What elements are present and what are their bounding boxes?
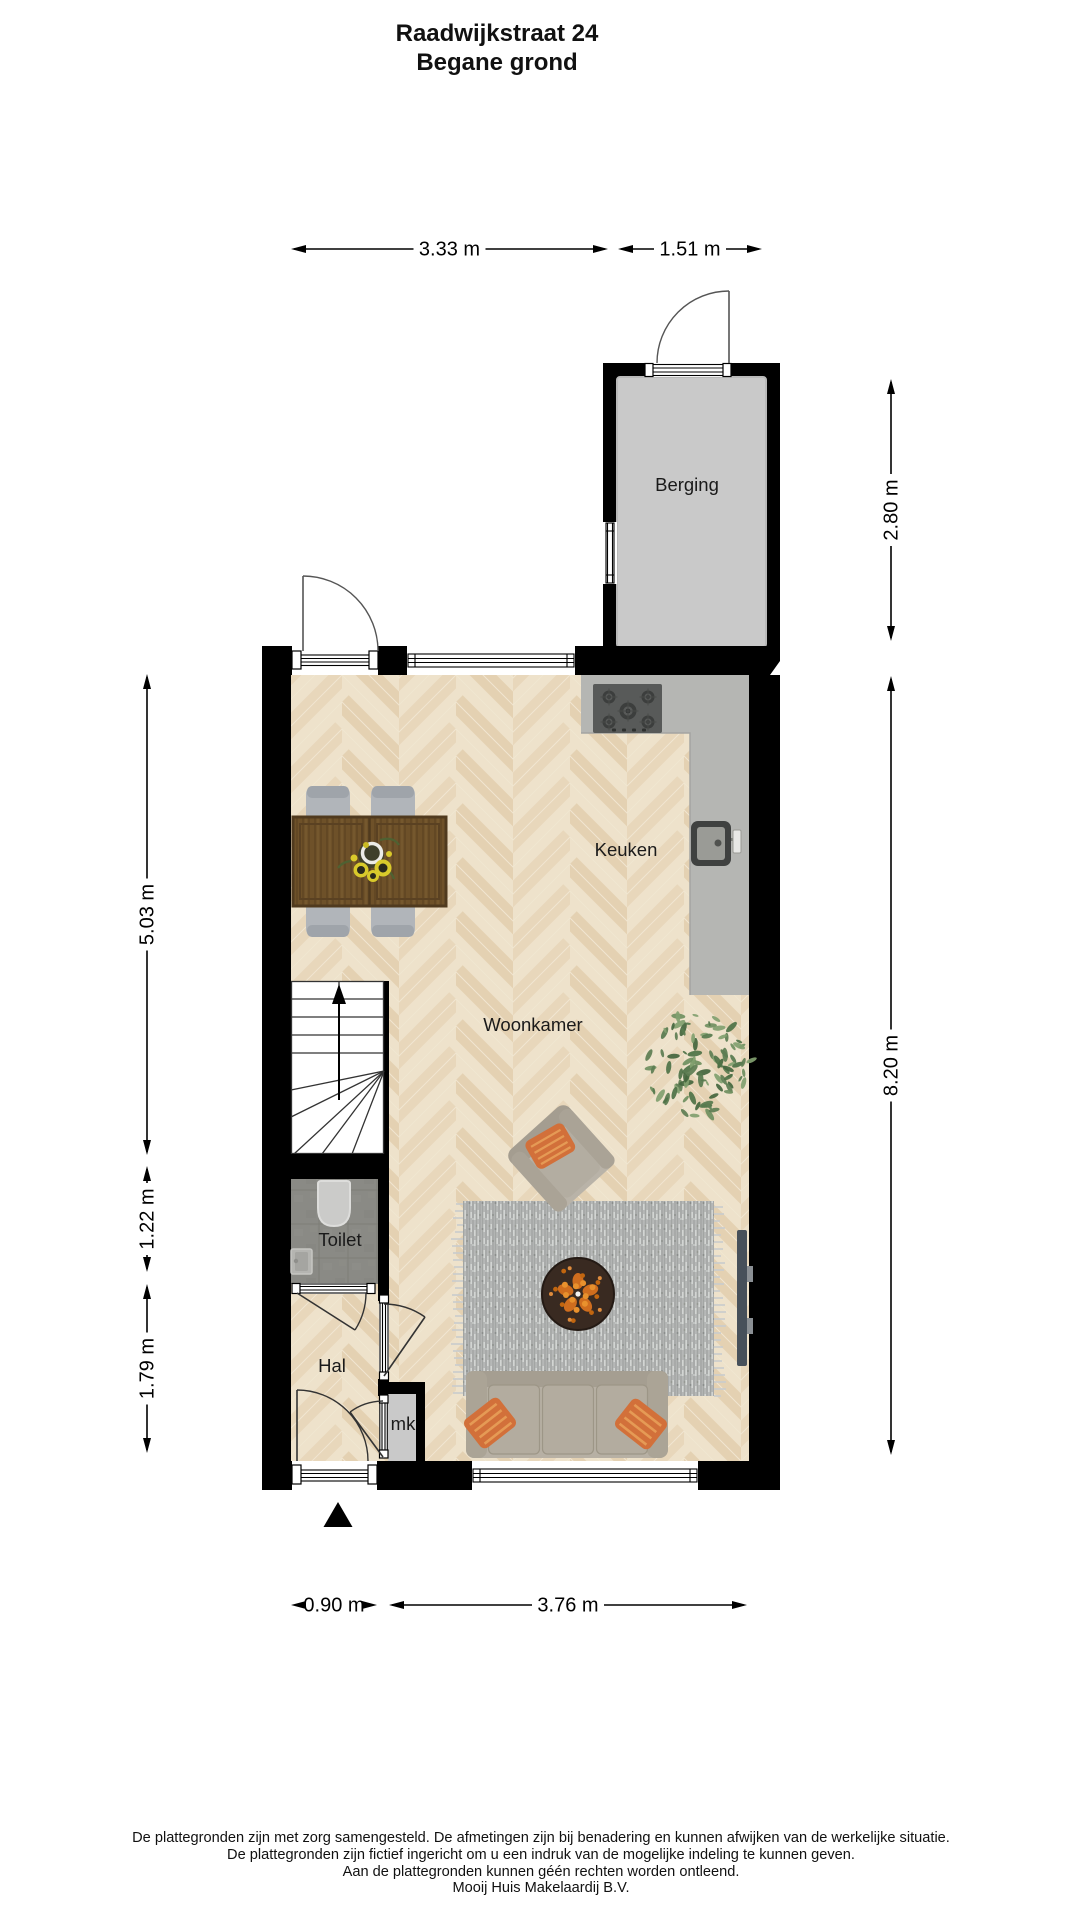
svg-text:Woonkamer: Woonkamer — [483, 1014, 582, 1035]
svg-text:Mooij Huis Makelaardij B.V.: Mooij Huis Makelaardij B.V. — [452, 1880, 629, 1896]
svg-text:De plattegronden zijn fictief: De plattegronden zijn fictief ingericht … — [227, 1847, 855, 1863]
svg-text:mk: mk — [391, 1413, 416, 1434]
svg-text:Raadwijkstraat 24: Raadwijkstraat 24 — [396, 20, 599, 47]
svg-text:1.51 m: 1.51 m — [659, 239, 720, 261]
svg-text:Toilet: Toilet — [318, 1229, 361, 1250]
svg-text:Hal: Hal — [318, 1355, 346, 1376]
svg-text:0.90 m: 0.90 m — [303, 1595, 364, 1617]
svg-text:3.76 m: 3.76 m — [537, 1595, 598, 1617]
svg-text:Begane grond: Begane grond — [416, 49, 577, 76]
svg-text:3.33 m: 3.33 m — [419, 239, 480, 261]
svg-text:2.80 m: 2.80 m — [881, 479, 903, 540]
svg-text:1.22 m: 1.22 m — [137, 1188, 159, 1249]
svg-text:5.03 m: 5.03 m — [137, 884, 159, 945]
svg-text:Berging: Berging — [655, 474, 719, 495]
svg-text:8.20 m: 8.20 m — [881, 1035, 903, 1096]
svg-text:Aan de plattegronden kunnen gé: Aan de plattegronden kunnen géén rechten… — [343, 1864, 740, 1880]
svg-text:Keuken: Keuken — [595, 839, 658, 860]
svg-text:1.79 m: 1.79 m — [137, 1338, 159, 1399]
svg-text:De plattegronden zijn met zorg: De plattegronden zijn met zorg samengest… — [132, 1830, 950, 1846]
